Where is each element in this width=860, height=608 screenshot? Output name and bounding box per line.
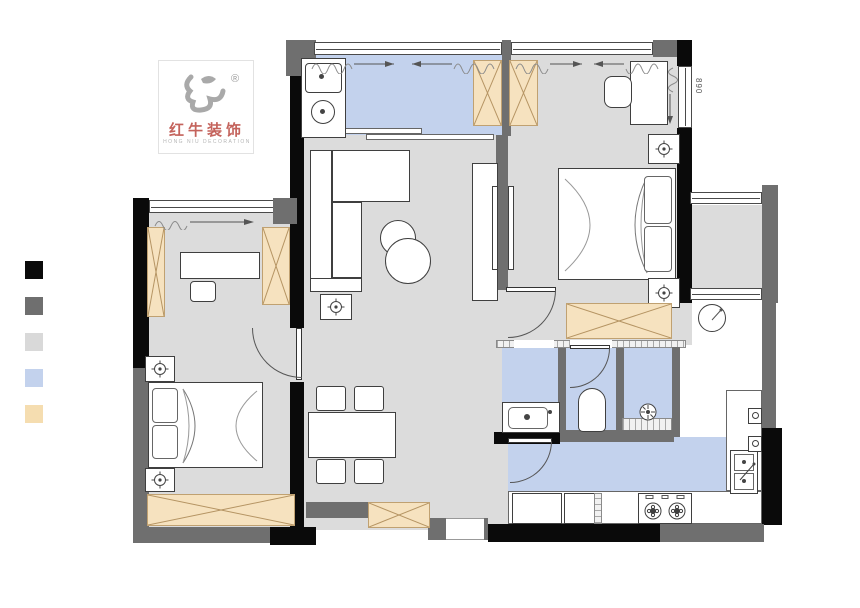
wall-right-lower: [760, 428, 782, 525]
washing-machine-dot: [320, 109, 325, 114]
kitchen-flue-tile: [594, 493, 602, 524]
company-logo: ® 红牛装饰 HONG NIU DECORATION: [158, 60, 254, 154]
color-legend: [25, 261, 43, 441]
sofa-armrest: [310, 278, 362, 292]
bedroom2-window: [149, 200, 275, 213]
lamp-icon: [654, 283, 674, 303]
master-bedroom-window: [511, 42, 653, 55]
registered-mark: ®: [231, 73, 239, 85]
pillow: [644, 176, 672, 224]
bathroom-vanity-opening: [514, 340, 554, 348]
brand-name: 红牛装饰: [165, 119, 249, 140]
master-wardrobe-south: [566, 303, 672, 339]
wall-bottom-left-black: [270, 527, 316, 545]
wall-utility-right: [762, 185, 778, 303]
dresser-stool: [190, 281, 216, 302]
pillow: [152, 425, 178, 459]
tv-bedroom-icon: [508, 186, 514, 270]
coffee-table-large: [385, 238, 431, 284]
entrance-jamb-left: [442, 518, 446, 540]
desk-chair: [604, 76, 632, 108]
dining-chair: [354, 386, 384, 411]
sofa-seats: [332, 202, 362, 278]
shower-drain-icon: [638, 402, 658, 422]
toilet: [578, 388, 606, 432]
utility-balcony-floor: [690, 205, 762, 289]
master-curtain-icon: [512, 56, 662, 74]
bedroom2-cabinet-west: [147, 227, 165, 317]
legend-swatch-new-wall: [25, 297, 43, 315]
balcony-window: [314, 42, 502, 55]
gas-stove-icon: [638, 493, 692, 524]
shoe-cabinet: [368, 502, 430, 528]
dining-chair: [354, 459, 384, 484]
balcony-curtain-icon: [308, 56, 498, 74]
water-heater-valve-icon: [704, 306, 726, 328]
tv-living-icon: [492, 186, 498, 270]
entrance-door-opening: [442, 518, 488, 540]
wall-bottom-left: [133, 527, 273, 543]
basin-drain: [524, 414, 530, 420]
wall-right-mid: [762, 303, 776, 430]
laundry-sink-drain: [319, 74, 324, 79]
sliding-door-panel-2: [366, 134, 494, 140]
fridge: [512, 493, 562, 524]
wall-topright-black: [677, 40, 692, 66]
lamp-icon: [326, 297, 346, 317]
wall-bath-bottom-gray: [560, 430, 674, 442]
lamp-icon: [150, 470, 170, 490]
nightstand-bedroom2-south: [145, 468, 175, 492]
bedroom2-wardrobe-south: [147, 494, 295, 526]
legend-swatch-load-bearing-wall: [25, 261, 43, 279]
bedroom2-wardrobe-east: [262, 227, 290, 305]
dimension-890: 890: [694, 78, 703, 94]
wall-fixture-2-knob: [752, 440, 759, 447]
sofa-chaise: [332, 150, 410, 202]
nightstand-master-north: [648, 134, 680, 164]
dining-chair: [316, 386, 346, 411]
wall-kitchen-bottom-black: [488, 524, 660, 542]
sofa-back: [310, 150, 332, 290]
nightstand-bedroom2-north: [145, 356, 175, 382]
master-side-window: [678, 66, 692, 128]
wall-kitchen-bottom-gray: [660, 524, 764, 542]
utility-window-top: [690, 192, 762, 204]
wall-bath-right: [672, 347, 680, 437]
dining-chair: [316, 459, 346, 484]
wall-fixture-1-knob: [752, 412, 759, 419]
master-side-curtain-icon: [662, 64, 678, 128]
brand-name-en: HONG NIU DECORATION: [159, 139, 255, 145]
lamp-icon: [654, 139, 674, 159]
pillow: [152, 388, 178, 423]
lamp-icon: [150, 359, 170, 379]
wall-entry-left: [306, 502, 368, 518]
dining-table: [308, 412, 396, 458]
sink-faucet-icon: [736, 458, 758, 484]
floor-plan-canvas: ® 红牛装饰 HONG NIU DECORATION 890: [0, 0, 860, 608]
wall-bedroom2-topright-block: [273, 198, 297, 224]
legend-swatch-floor-area: [25, 333, 43, 351]
wall-entry-stub: [428, 518, 442, 540]
basin-faucet: [548, 410, 552, 414]
wall-corner-topright: [653, 40, 677, 57]
utility-window-bottom: [690, 288, 762, 300]
bull-logo-icon: [175, 71, 231, 123]
legend-swatch-custom-furniture: [25, 405, 43, 423]
side-table: [320, 294, 352, 320]
legend-swatch-water-area: [25, 369, 43, 387]
bedroom2-curtain-icon: [152, 214, 264, 230]
pillow: [644, 226, 672, 272]
dresser: [180, 252, 260, 279]
